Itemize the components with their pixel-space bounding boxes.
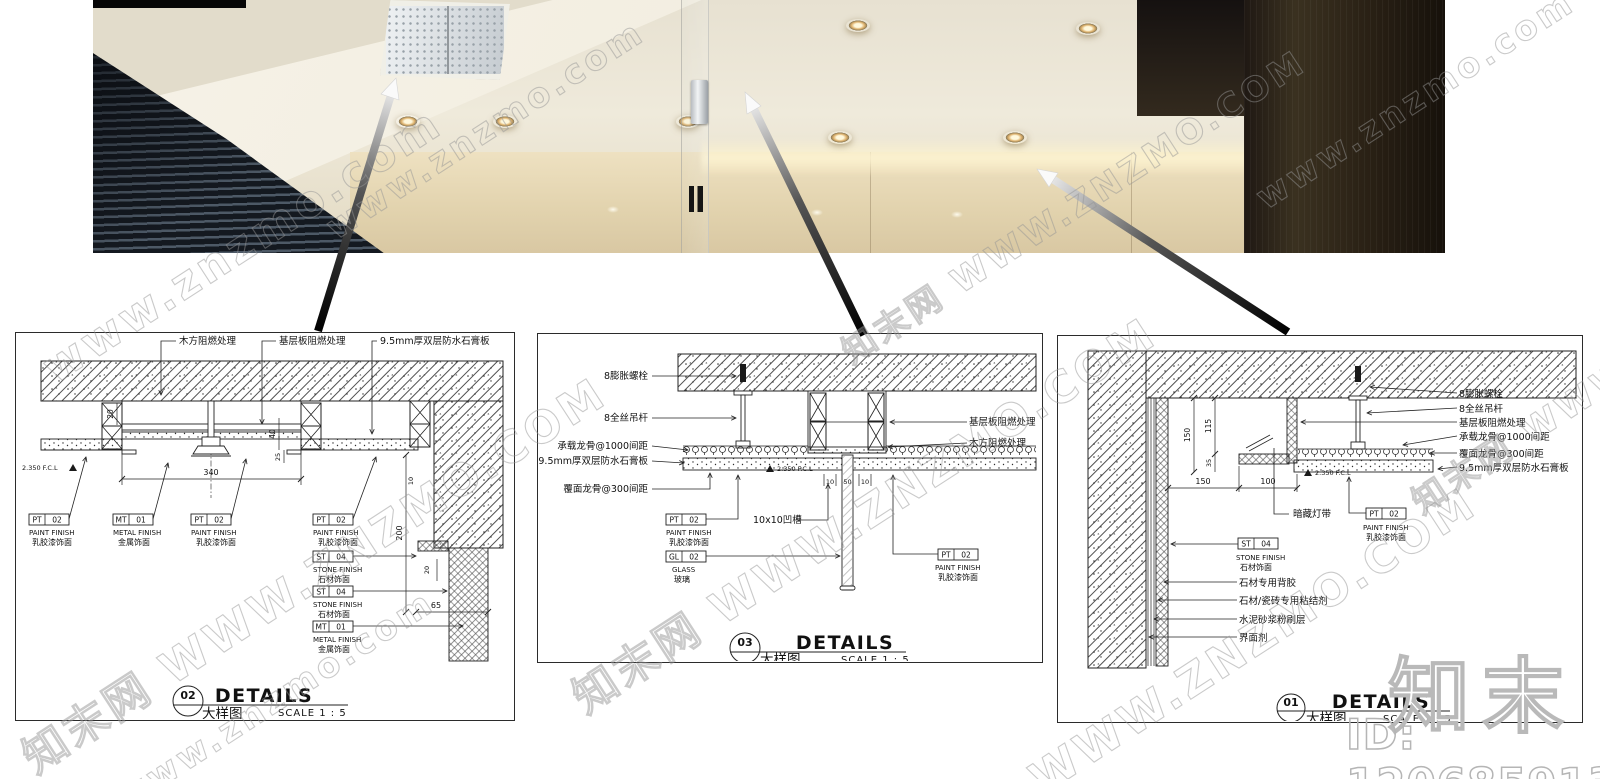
tag-code: PT — [1369, 510, 1379, 519]
drawing-title: 03 DETAILS 大样图 SCALE 1 : 5 — [730, 632, 910, 661]
tag-caption: 石材饰面 — [318, 574, 350, 584]
dim-label: 20 — [423, 566, 431, 574]
callout-label: 界面剂 — [1239, 632, 1268, 644]
callouts-wall: 石材专用背胶 石材/瓷砖专用粘结剂 水泥砂浆粉刷层 界面剂 — [1149, 577, 1328, 644]
stone-wall-section — [418, 541, 488, 661]
tag-caption: STONE FINISH — [313, 566, 362, 574]
tag-caption: 玻璃 — [674, 574, 690, 584]
tag-num: 02 — [52, 516, 62, 525]
callout-label: 承载龙骨@1000间距 — [557, 440, 648, 452]
tag-num: 02 — [336, 516, 346, 525]
drawing-title: 02 DETAILS 大样图 SCALE 1 : 5 — [173, 685, 348, 719]
callout-label: 9.5mm厚双层防水石膏板 — [380, 335, 490, 347]
tag-caption: PAINT FINISH — [935, 564, 980, 572]
tag-code: PT — [32, 516, 42, 525]
finish-tag: ST 04 STONE FINISH 石材饰面 — [313, 551, 416, 584]
callout-label: 石材专用背胶 — [1239, 577, 1297, 589]
title-number: 02 — [180, 689, 195, 702]
photo-downlight — [493, 115, 517, 128]
concrete-slab — [41, 361, 503, 548]
callout-label: 9.5mm厚双层防水石膏板 — [538, 455, 648, 467]
photo-glass-partition — [681, 0, 709, 253]
tag-code: PT — [316, 516, 326, 525]
title-sub: 大样图 — [760, 652, 801, 661]
dim-label: 10 — [826, 478, 834, 486]
callout-label: 覆面龙骨@300间距 — [563, 483, 648, 495]
callout-label: 水泥砂浆粉刷层 — [1239, 614, 1306, 626]
title-scale: SCALE 1 : 5 — [278, 708, 347, 719]
dim-label: 150 — [1183, 428, 1192, 443]
callout-label: 暗藏灯带 — [1293, 508, 1332, 520]
tag-num: 01 — [336, 623, 346, 632]
tag-code: PT — [669, 516, 679, 525]
tag-num: 02 — [214, 516, 224, 525]
detail-sheet: 340 20 40 25 200 10 65 20 2.350 F.C.L — [0, 0, 1600, 779]
tag-code: PT — [941, 551, 951, 560]
photo-downlight — [1003, 131, 1027, 144]
ceiling-assembly — [41, 401, 418, 454]
tag-caption: 乳胶漆饰面 — [318, 537, 358, 547]
tag-caption: PAINT FINISH — [29, 529, 74, 537]
tag-num: 04 — [1261, 540, 1271, 549]
callout-label: 基层板阻燃处理 — [969, 416, 1036, 428]
tag-caption: 乳胶漆饰面 — [669, 537, 709, 547]
title-number: 03 — [737, 636, 752, 649]
asset-id: ID: 1206859136 — [1346, 710, 1600, 779]
tag-num: 02 — [1389, 510, 1399, 519]
tag-code: ST — [1241, 540, 1251, 549]
tag-code: GL — [669, 553, 680, 562]
callout-label: 10x10凹槽 — [753, 514, 802, 526]
dim-label: 50 — [843, 478, 851, 486]
tag-caption: 乳胶漆饰面 — [32, 537, 72, 547]
dim-label: 115 — [1204, 419, 1213, 434]
photo-downlight — [828, 131, 852, 144]
callout-label: 承载龙骨@1000间距 — [1459, 431, 1550, 443]
dimensions: 150 115 35 150 100 — [1165, 395, 1300, 492]
tag-caption: 乳胶漆饰面 — [938, 572, 978, 582]
finish-tag: PT 02 PAINT FINISH 乳胶漆饰面 — [893, 475, 980, 582]
callout-label: 9.5mm厚双层防水石膏板 — [1459, 462, 1569, 474]
tag-code: ST — [316, 553, 326, 562]
photo-downlight — [1076, 22, 1100, 35]
tag-caption: 乳胶漆饰面 — [1366, 532, 1406, 542]
tag-caption: METAL FINISH — [113, 529, 161, 537]
detail-drawing-03: 10 50 10 2.350 F.C.L 8膨胀螺栓 8全丝吊杆 承载龙骨@10… — [537, 333, 1043, 663]
tag-num: 04 — [336, 553, 346, 562]
finish-tag: ST 04 STONE FINISH 石材饰面 — [1171, 538, 1285, 572]
level-label: 2.350 F.C.L — [777, 465, 813, 473]
tag-caption: GLASS — [672, 566, 696, 574]
concrete-slab — [678, 354, 1036, 391]
photo-top-bar — [93, 0, 246, 8]
detail-drawing-02: 340 20 40 25 200 10 65 20 2.350 F.C.L — [15, 332, 515, 721]
photo-wood-panel — [1244, 0, 1445, 253]
tag-code: MT — [115, 516, 126, 525]
photo-dark-transom — [1137, 0, 1248, 116]
dim-label: 150 — [1195, 477, 1210, 486]
title-scale: SCALE 1 : 5 — [841, 655, 910, 661]
photo-rain-shower-head — [380, 0, 510, 80]
finish-tag: ST 04 STONE FINISH 石材饰面 — [313, 586, 447, 619]
tag-caption: STONE FINISH — [313, 601, 362, 609]
dim-label: 100 — [1260, 477, 1275, 486]
finish-tag: MT 01 METAL FINISH 金属饰面 — [113, 463, 168, 547]
callout-label: 木方阻燃处理 — [179, 335, 237, 347]
dim-label: 20 — [106, 409, 115, 419]
callout-label: 基层板阻燃处理 — [279, 335, 346, 347]
tag-num: 02 — [689, 553, 699, 562]
callout-label: 8全丝吊杆 — [1459, 403, 1504, 415]
tag-num: 01 — [136, 516, 146, 525]
photo-wall-spot — [949, 210, 965, 219]
reference-photo — [93, 0, 1445, 253]
finish-tag: PT 02 PAINT FINISH 乳胶漆饰面 — [313, 457, 376, 547]
callout-label: 8膨胀螺栓 — [1459, 388, 1504, 400]
level-label: 2.350 F.C.L — [1315, 469, 1351, 477]
photo-wall-spot — [605, 205, 621, 214]
callout-label: 覆面龙骨@300间距 — [1459, 448, 1544, 460]
callout-label: 8全丝吊杆 — [604, 412, 649, 424]
photo-glass-handle — [689, 186, 703, 212]
tag-caption: PAINT FINISH — [1363, 524, 1408, 532]
photo-downlight — [396, 115, 420, 128]
title-main: DETAILS — [796, 632, 894, 654]
finish-tag: PT 02 PAINT FINISH 乳胶漆饰面 — [666, 475, 738, 547]
tag-num: 02 — [689, 516, 699, 525]
dim-label: 10 — [861, 478, 869, 486]
tag-caption: PAINT FINISH — [313, 529, 358, 537]
level-label: 2.350 F.C.L — [22, 464, 58, 472]
drawing-02-linework: 340 20 40 25 200 10 65 20 2.350 F.C.L — [16, 333, 513, 719]
glass-partition — [840, 455, 855, 590]
finish-tag: GL 02 GLASS 玻璃 — [666, 551, 840, 584]
callout-label: 木方阻燃处理 — [969, 437, 1027, 449]
dim-label: 200 — [395, 525, 404, 540]
tag-caption: PAINT FINISH — [191, 529, 236, 537]
tag-caption: 金属饰面 — [318, 644, 350, 654]
groove-callout: 10x10凹槽 — [753, 484, 828, 526]
dim-label: 10 — [407, 477, 415, 485]
photo-cove-light — [701, 137, 1255, 175]
tag-num: 04 — [336, 588, 346, 597]
tag-num: 02 — [961, 551, 971, 560]
drawing-03-linework: 10 50 10 2.350 F.C.L 8膨胀螺栓 8全丝吊杆 承载龙骨@10… — [538, 334, 1041, 661]
title-number: 01 — [1283, 696, 1298, 709]
tag-code: MT — [315, 623, 326, 632]
tag-caption: 乳胶漆饰面 — [196, 537, 236, 547]
tag-caption: METAL FINISH — [313, 636, 361, 644]
tag-code: PT — [194, 516, 204, 525]
dim-label: 35 — [1205, 459, 1213, 467]
callout-label: 石材/瓷砖专用粘结剂 — [1239, 595, 1328, 607]
tag-code: ST — [316, 588, 326, 597]
tag-caption: PAINT FINISH — [666, 529, 711, 537]
shower-head-symbol — [191, 401, 231, 498]
tag-caption: 石材饰面 — [318, 609, 350, 619]
photo-downlight — [846, 19, 870, 32]
wood-blocking-box — [808, 391, 886, 453]
tag-caption: 金属饰面 — [118, 537, 150, 547]
photo-shower-plate — [386, 6, 504, 74]
wall-finish-layers — [1148, 398, 1168, 666]
level-marker: 2.350 F.C.L — [22, 450, 122, 472]
finish-tag: PT 02 PAINT FINISH 乳胶漆饰面 — [1349, 477, 1408, 542]
callout-label: 基层板阻燃处理 — [1459, 417, 1526, 429]
finish-tag: MT 01 METAL FINISH 金属饰面 — [313, 621, 463, 654]
dim-label: 340 — [203, 468, 218, 477]
title-sub: 大样图 — [1306, 711, 1347, 721]
tag-caption: 石材饰面 — [1240, 562, 1272, 572]
photo-glass-hinge — [691, 80, 708, 124]
cove-detail — [1239, 398, 1297, 464]
dim-label: 25 — [274, 453, 282, 461]
title-main: DETAILS — [215, 685, 313, 707]
callouts-right: 基层板阻燃处理 木方阻燃处理 — [888, 416, 1036, 449]
title-sub: 大样图 — [202, 706, 243, 719]
callout-label: 8膨胀螺栓 — [604, 370, 649, 382]
photo-wall-spot — [809, 208, 825, 217]
tag-caption: STONE FINISH — [1236, 554, 1285, 562]
dim-label: 65 — [431, 601, 441, 610]
dim-label: 40 — [268, 429, 277, 439]
